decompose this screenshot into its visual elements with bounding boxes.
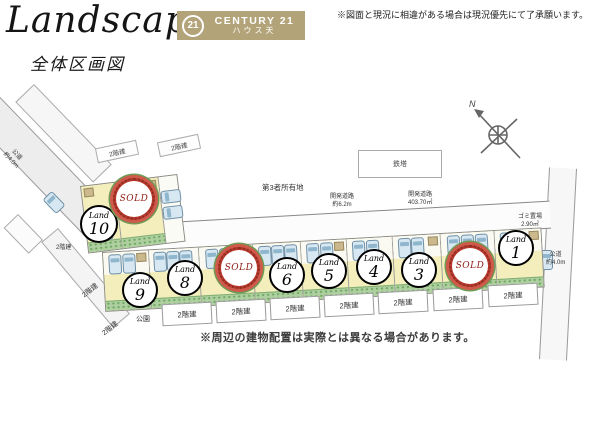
right-road-label: 公道 約4.0m: [546, 252, 565, 267]
neighbor-building: 2階建: [269, 296, 320, 321]
land-circle-6: Land 6: [269, 257, 305, 293]
land-circle-3: Land 3: [401, 252, 437, 288]
tower-structure: 鉄塔: [358, 150, 442, 178]
dev-road-area-label: 開発道路 403.70㎡: [408, 192, 432, 207]
north-letter: N: [469, 99, 476, 109]
shed-icon: [146, 180, 157, 190]
neighbor-building: 2階建: [432, 287, 483, 312]
neighbor-building: 2階建: [161, 302, 212, 327]
neighbor-building-small: [4, 214, 43, 254]
land-circle-8: Land 8: [167, 260, 203, 296]
third-party-land-label: 第3者所有地: [262, 182, 304, 193]
car-icon: [162, 205, 183, 220]
tower-label: 鉄塔: [393, 159, 407, 169]
car-icon: [447, 235, 461, 256]
neighbor-building: 2階建: [95, 140, 139, 163]
neighbor-building: 2階建: [215, 299, 266, 324]
land-circle-10: Land 10: [80, 205, 118, 243]
dev-road-width-label: 開発道路 約6.2m: [330, 194, 354, 209]
brand-branch: ハウス天: [204, 27, 305, 35]
car-icon: [108, 254, 122, 275]
neighbor-label: 2階建: [56, 242, 71, 251]
sold-wreath-2: SOLD: [454, 250, 486, 282]
compass-rose: N: [468, 96, 528, 175]
shed-icon: [83, 187, 94, 197]
site-plan-page: Landscape 全体区画図 21 CENTURY 21 ハウス天 ※図面と現…: [0, 0, 600, 423]
land-circle-1: Land 1: [498, 230, 534, 266]
shed-icon: [334, 241, 344, 251]
bottom-note: ※周辺の建物配置は実際とは異なる場合があります。: [200, 329, 475, 345]
sold-wreath-upper: SOLD: [118, 183, 150, 215]
land-circle-5: Land 5: [311, 253, 347, 289]
neighbor-building: 2階建: [157, 134, 201, 157]
century21-badge: 21 CENTURY 21 ハウス天: [177, 11, 305, 40]
neighbor-building: 2階建: [323, 293, 374, 318]
shed-icon: [428, 236, 438, 246]
land-circle-4: Land 4: [356, 249, 392, 285]
car-icon: [122, 253, 136, 274]
sold-wreath-7: SOLD: [223, 252, 255, 284]
page-subtitle: 全体区画図: [30, 50, 125, 75]
century21-logo-icon: 21: [182, 15, 204, 37]
car-icon: [258, 246, 272, 267]
shed-icon: [136, 253, 146, 263]
car-icon: [205, 249, 219, 270]
top-disclaimer: ※図面と現況に相違がある場合は現況優先にて了承願います。: [337, 8, 588, 21]
century21-text: CENTURY 21 ハウス天: [204, 16, 305, 35]
hedge-strip: [122, 233, 166, 248]
park-label: 公園: [136, 314, 150, 324]
car-icon: [160, 189, 181, 204]
neighbor-building: 2階建: [487, 283, 538, 308]
car-icon: [153, 251, 167, 272]
neighbor-building: 2階建: [377, 290, 428, 315]
land-circle-9: Land 9: [122, 272, 158, 308]
